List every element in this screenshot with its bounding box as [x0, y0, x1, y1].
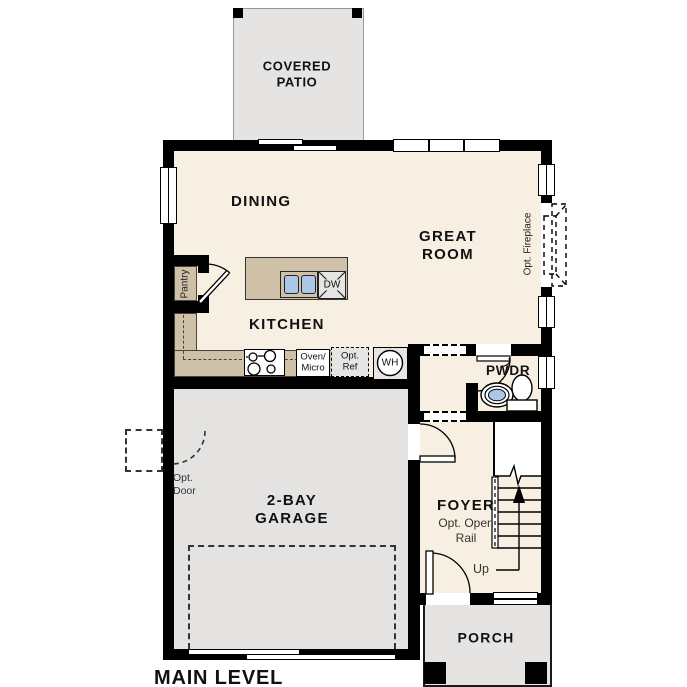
oven-micro-label: Oven/ Micro [300, 352, 325, 373]
stair-break-line [495, 466, 541, 484]
room-label-kitchen: KITCHEN [249, 316, 325, 334]
stairs-up-arrow [496, 485, 525, 570]
plan-title: MAIN LEVEL [154, 666, 283, 687]
dishwasher-label: DW [323, 279, 342, 290]
opt-open-rail-label: Opt. Open Rail [438, 516, 493, 546]
room-label-dining: DINING [231, 193, 291, 211]
pantry-label: Pantry [180, 270, 191, 299]
opt-door-arc [172, 431, 205, 464]
opt-door-label: Opt. Door [173, 472, 196, 498]
room-label-garage: 2-BAY GARAGE [255, 492, 329, 528]
room-label-covered-patio: COVERED PATIO [263, 58, 332, 89]
floor-plan: COVERED PATIO DINING GREAT ROOM KITCHEN … [0, 0, 687, 687]
water-heater-label: WH [382, 357, 399, 368]
opt-fireplace-outline [544, 204, 566, 286]
room-label-porch: PORCH [457, 630, 514, 647]
up-label: Up [473, 562, 489, 578]
front-door [426, 551, 470, 594]
stairs [492, 466, 541, 548]
room-label-great-room: GREAT ROOM [419, 228, 477, 264]
pantry-door [200, 264, 230, 302]
opt-ref-label: Opt. Ref [341, 351, 359, 372]
cooktop-burners [246, 351, 276, 376]
room-label-foyer: FOYER [437, 497, 495, 515]
room-label-pwdr: PWDR [486, 363, 530, 379]
opt-fireplace-label: Opt. Fireplace [523, 213, 534, 276]
garage-entry-door [420, 424, 455, 462]
plan-annotations [0, 0, 687, 687]
